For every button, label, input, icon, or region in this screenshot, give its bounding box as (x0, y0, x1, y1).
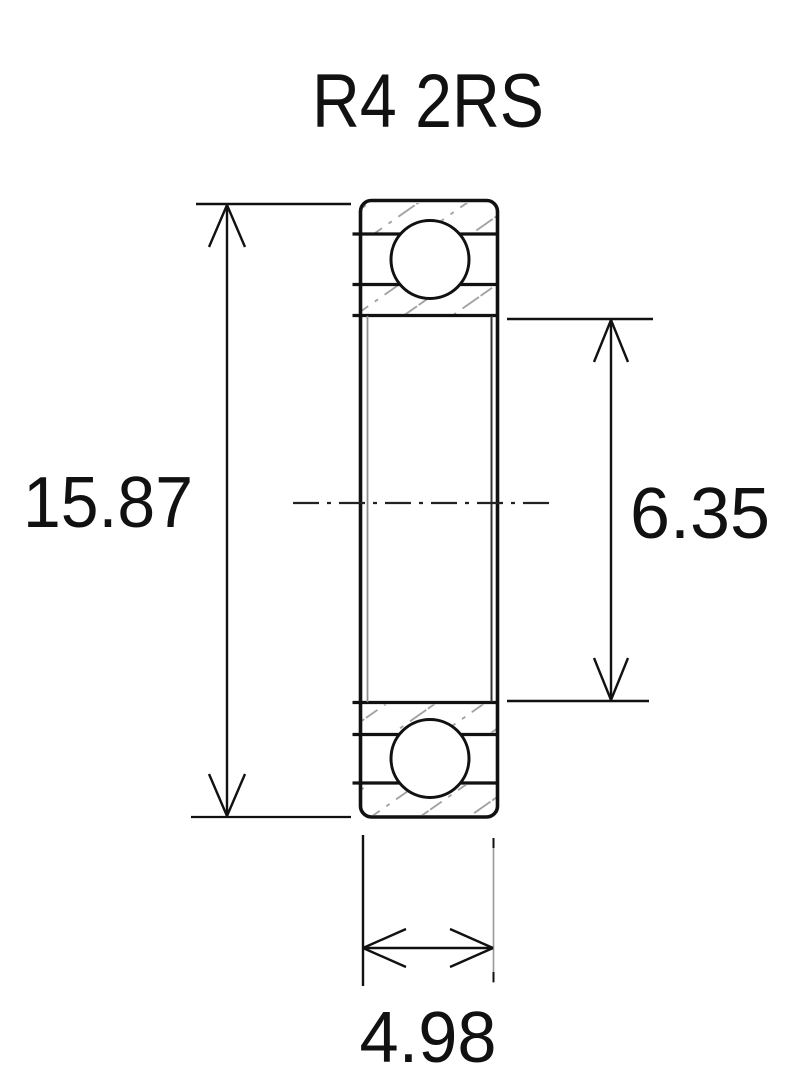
ball-top (391, 221, 469, 299)
drawing-title: R4 2RS (312, 59, 544, 144)
dim-id-value: 6.35 (630, 474, 770, 554)
bearing-cross-section-drawing: R4 2RS (0, 0, 800, 1080)
dim-od-value: 15.87 (23, 463, 193, 543)
ball-bottom (391, 720, 469, 798)
dim-width-value: 4.98 (360, 998, 497, 1078)
bearing-drawing-page: R4 2RS (0, 0, 800, 1080)
